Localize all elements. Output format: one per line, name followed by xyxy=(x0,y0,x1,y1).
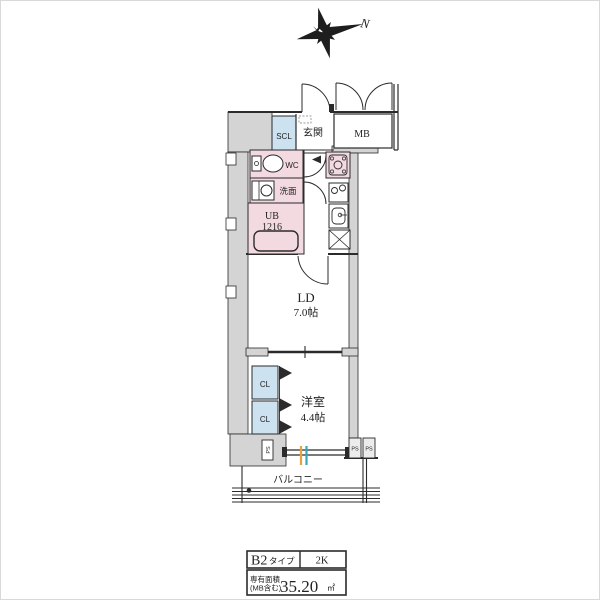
floorplan-canvas: N SCL 玄関 xyxy=(0,0,600,600)
pipe-space-left-label: PS xyxy=(266,446,272,454)
living-dining-size: 7.0帖 xyxy=(294,306,319,319)
living-dining-room: LD 7.0帖 xyxy=(268,256,342,358)
sliding-partition xyxy=(268,346,342,358)
washbasin-icon xyxy=(252,181,274,200)
unit-type-name: B2 xyxy=(251,554,267,569)
stove-icon xyxy=(329,183,348,202)
bathroom: UB 1216 xyxy=(248,203,304,254)
bedroom-size: 4.4帖 xyxy=(301,411,326,424)
folding-door-icon xyxy=(279,366,292,434)
washroom-label: 洗面 xyxy=(279,186,297,196)
meter-box: MB xyxy=(334,83,392,148)
unit-layout: 2K xyxy=(316,556,329,567)
meter-box-door-arcs xyxy=(336,83,392,110)
shoe-closet-label: SCL xyxy=(276,132,292,141)
door-swing-arrow-icon xyxy=(312,156,321,164)
closet-lower-label: CL xyxy=(260,415,271,424)
entrance-niche xyxy=(299,116,311,123)
toilet-room: WC xyxy=(250,150,326,178)
summary-table: B2 タイプ 2K 専有面積 (MB含む) 35.20 ㎡ xyxy=(247,551,346,596)
washing-machine-icon xyxy=(326,152,350,178)
washroom-door-arc xyxy=(304,182,326,204)
entrance-hall-label: 玄関 xyxy=(303,126,323,139)
toilet-icon xyxy=(252,155,283,172)
balcony-window xyxy=(282,446,350,465)
balcony-railing xyxy=(232,488,380,502)
area-label-line1: 専有面積 xyxy=(250,574,280,584)
pipe-space-right1-label: PS xyxy=(351,447,359,453)
area-label-line2: (MB含む) xyxy=(250,583,282,593)
refrigerator-space-icon xyxy=(329,230,350,249)
toilet-label: WC xyxy=(285,161,299,170)
area-unit: ㎡ xyxy=(327,584,335,593)
unit-type-suffix: タイプ xyxy=(269,556,295,566)
pipe-space-right2-label: PS xyxy=(365,447,373,453)
entrance-door-arc xyxy=(302,84,334,112)
closet-upper-label: CL xyxy=(260,380,271,389)
meter-box-label: MB xyxy=(354,129,370,140)
bedroom-label: 洋室 xyxy=(301,394,325,409)
kitchen-strip xyxy=(312,152,350,249)
washroom: 洗面 xyxy=(250,178,326,204)
floorplan-page: N SCL 玄関 xyxy=(0,0,600,600)
living-dining-label: LD xyxy=(297,290,314,305)
compass-rose-icon: N xyxy=(291,0,372,65)
living-door-arc xyxy=(298,256,328,284)
balcony-label: バルコニー xyxy=(273,474,323,486)
balcony-drain-icon xyxy=(247,488,252,493)
bath-label: UB xyxy=(265,211,279,222)
compass-north-label: N xyxy=(358,15,371,32)
area-value: 35.20 xyxy=(280,577,318,596)
kitchen-sink-icon xyxy=(329,204,348,228)
entrance-area: SCL 玄関 xyxy=(272,84,334,153)
